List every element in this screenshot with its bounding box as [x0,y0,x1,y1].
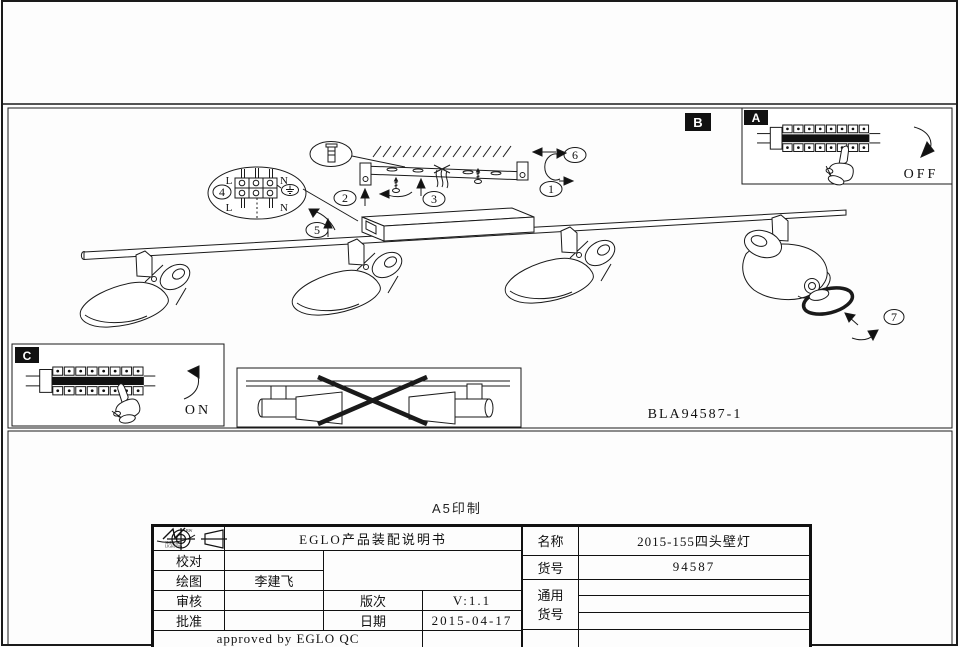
right-footer-label-cell [523,630,579,647]
review-label: 审核 [154,591,225,611]
detail-label-b: B [685,113,711,131]
detail-box-c: C ON [12,344,224,426]
title-block-left: BW SHENGDA LIGHTING EGLO产品装配说明书 校对 [153,526,522,647]
breaker-strip-a [757,125,880,152]
item-label: 货号 [523,555,579,579]
wrong-orientation-box [237,368,521,427]
approved-line: approved by EGLO QC [154,631,423,647]
title-block-right: 名称 2015-155四头壁灯 货号 94587 通用 货号 [522,526,810,647]
on-text: ON [185,403,211,418]
callout-7-number: 7 [891,310,897,324]
projection-symbol-cell [324,551,522,591]
detail-a-label: A [752,111,761,125]
spot-head-2 [292,239,406,315]
ceiling-hatch [373,146,511,157]
mounting-screw-1 [393,178,400,193]
detail-box-a: A OFF [742,108,952,188]
common-item-label: 通用 货号 [523,579,579,629]
draw-value: 李建飞 [225,571,324,591]
off-text: OFF [904,167,939,182]
name-value: 2015-155四头壁灯 [579,527,810,556]
version-value: V:1.1 [423,591,522,611]
common-item-row-3 [579,613,810,630]
approve-label: 批准 [154,611,225,631]
doc-title: EGLO产品装配说明书 [225,527,522,551]
callout-2: 2 [334,189,369,206]
draw-label: 绘图 [154,571,225,591]
print-note: A5印制 [432,498,482,517]
common-item-row-1 [579,579,810,596]
version-label: 版次 [324,591,423,611]
approved-empty-cell [423,631,522,647]
date-label: 日期 [324,611,423,631]
callout-5: 5 [306,209,335,238]
wire-label-n-top: N [280,175,288,187]
title-block: BW SHENGDA LIGHTING EGLO产品装配说明书 校对 [151,524,812,647]
mounting-bracket [360,162,528,188]
callout-6: 6 [533,148,586,181]
right-footer-value-cell [579,630,810,647]
common-label-line2: 货号 [523,604,578,623]
callout-3: 3 [417,179,445,207]
common-label-line1: 通用 [523,585,578,604]
callout-4-number: 4 [219,185,225,199]
breaker-strip-c [26,367,156,395]
date-value: 2015-04-17 [423,611,522,631]
detail-b-label: B [693,115,702,130]
callout-7: 7 [884,310,904,325]
review-value [225,591,324,611]
wire-label-l-top: L [226,175,233,187]
name-label: 名称 [523,527,579,556]
callout-3-number: 3 [431,192,437,206]
detail-c-label: C [23,349,32,363]
spot-head-1 [80,251,194,327]
instruction-sheet: 7 [0,0,960,647]
callout-5-number: 5 [314,223,320,237]
callout-7-arrows [845,313,878,340]
callout-2-number: 2 [342,191,348,205]
callout-6-number: 6 [572,148,578,162]
wall-anchor-detail [310,142,405,168]
wire-label-l-bottom: L [226,202,233,214]
check-value [225,551,324,571]
canopy-box [362,208,534,241]
callout-1-number: 1 [548,182,554,196]
wire-label-n-bottom: N [280,202,288,214]
common-item-row-2 [579,596,810,613]
spot-head-3 [505,227,619,303]
check-label: 校对 [154,551,225,571]
drawing-code: BLA94587-1 [648,407,743,422]
item-value: 94587 [579,555,810,579]
approve-value [225,611,324,631]
